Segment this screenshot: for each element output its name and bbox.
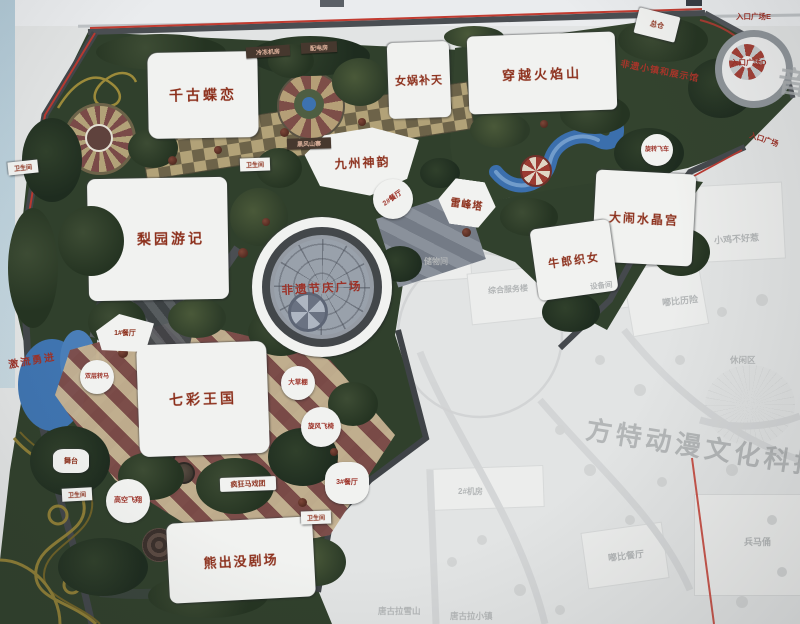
facility-label: 黑风山寨 xyxy=(297,139,321,149)
tree xyxy=(298,498,307,507)
facility-label: 3#餐厅 xyxy=(336,479,358,487)
attraction-chuanyuehuoyanshan: 穿越火焰山 xyxy=(467,31,618,114)
round-plaza-west-center xyxy=(85,124,113,152)
faded-label: 唐古拉小镇 xyxy=(450,610,493,622)
entrance-plaza-e-label: 入口广场E xyxy=(736,11,771,22)
facility-label: 总仓 xyxy=(649,18,665,31)
tree xyxy=(540,120,548,128)
foliage xyxy=(8,208,58,328)
facility-label: 1#餐厅 xyxy=(114,328,136,338)
facility-carousel: 双层转马 xyxy=(80,360,114,394)
attraction-qicaiwangguo: 七彩王国 xyxy=(136,341,270,457)
entrance-plaza-d-label: 入口广场D xyxy=(731,57,766,68)
restroom: 卫生间 xyxy=(62,487,93,502)
facility-flycar: 旋转飞车 xyxy=(641,134,673,166)
attraction-label: 九州神韵 xyxy=(334,152,391,172)
facility-label: 2#餐厅 xyxy=(382,190,404,209)
restroom: 卫生间 xyxy=(240,157,270,171)
facility-label: 配电房 xyxy=(310,43,328,53)
tree xyxy=(358,118,366,126)
facility-restaurant-3: 3#餐厅 xyxy=(325,462,369,504)
attraction-label: 熊出没剧场 xyxy=(203,549,279,572)
faded-label: 储物间 xyxy=(424,256,448,267)
attraction-xiongchumojuchang: 熊出没剧场 xyxy=(166,516,316,604)
attraction-nvwabutian: 女娲补天 xyxy=(387,41,452,119)
attraction-label: 穿越火焰山 xyxy=(502,62,583,84)
round-garden-pond xyxy=(302,97,316,111)
faded-label: 设备间 xyxy=(589,279,613,292)
attraction-label: 牛郎织女 xyxy=(547,248,601,271)
faded-label: 兵马俑 xyxy=(744,535,771,548)
attraction-qiangudielian: 千古蝶恋 xyxy=(147,51,258,139)
tree xyxy=(262,218,270,226)
facility-label: 双层转马 xyxy=(85,374,109,381)
tree xyxy=(238,248,248,258)
foliage xyxy=(168,298,226,338)
restroom-label: 卫生间 xyxy=(307,513,325,523)
restroom-label: 卫生间 xyxy=(246,160,264,170)
attraction-label: 千古蝶恋 xyxy=(169,84,237,105)
restroom: 卫生间 xyxy=(301,510,331,524)
tree xyxy=(214,146,222,154)
restroom-label: 卫生间 xyxy=(14,162,33,173)
facility-label: 疯狂马戏团 xyxy=(230,478,265,489)
attraction-label: 梨园游记 xyxy=(137,228,205,249)
facility-label: 冷冻机房 xyxy=(256,46,281,57)
restroom-label: 卫生间 xyxy=(68,490,86,500)
facility-xuanfengfeiyi: 旋风飞椅 xyxy=(301,407,341,447)
tree xyxy=(280,128,289,137)
faded-label: 唐古拉雪山 xyxy=(378,605,421,617)
faded-label: 2#机房 xyxy=(458,486,483,497)
facility-gaokongfeixiang: 高空飞翔 xyxy=(106,479,150,523)
tree xyxy=(330,448,338,456)
foliage xyxy=(58,538,148,596)
facility-power-room: 配电房 xyxy=(301,41,338,54)
attraction-label: 女娲补天 xyxy=(395,71,444,89)
facility-stage: 舞台 xyxy=(53,449,89,473)
facility-dacaopeng: 大草棚 xyxy=(281,366,315,400)
facility-label: 大草棚 xyxy=(288,379,308,386)
foliage xyxy=(332,58,388,106)
facility-circus: 疯狂马戏团 xyxy=(220,476,276,492)
attraction-label: 七彩王国 xyxy=(169,388,238,410)
foliage xyxy=(58,206,124,276)
tree xyxy=(462,228,471,237)
facility-restaurant-2: 2#餐厅 xyxy=(373,179,413,219)
facility-label: 舞台 xyxy=(64,456,78,466)
theme-park-map-photo: 千古蝶恋 女娲补天 穿越火焰山 九州神韵 雷峰塔 大闹水晶宫 牛郎织女 梨园游记… xyxy=(0,0,800,624)
attraction-label: 大闹水晶宫 xyxy=(609,208,680,229)
facility-label: 旋转飞车 xyxy=(645,147,669,154)
foliage xyxy=(470,112,530,148)
tree xyxy=(168,156,177,165)
facility-label: 旋风飞椅 xyxy=(308,423,334,430)
attraction-label: 雷峰塔 xyxy=(450,193,485,212)
fountain-rosette xyxy=(520,155,552,187)
facility-label: 高空飞翔 xyxy=(114,497,142,505)
facility-heifengshanzhai: 黑风山寨 xyxy=(287,137,331,150)
heritage-plaza-emblem xyxy=(288,292,328,332)
faded-label: 休闲区 xyxy=(730,354,756,366)
